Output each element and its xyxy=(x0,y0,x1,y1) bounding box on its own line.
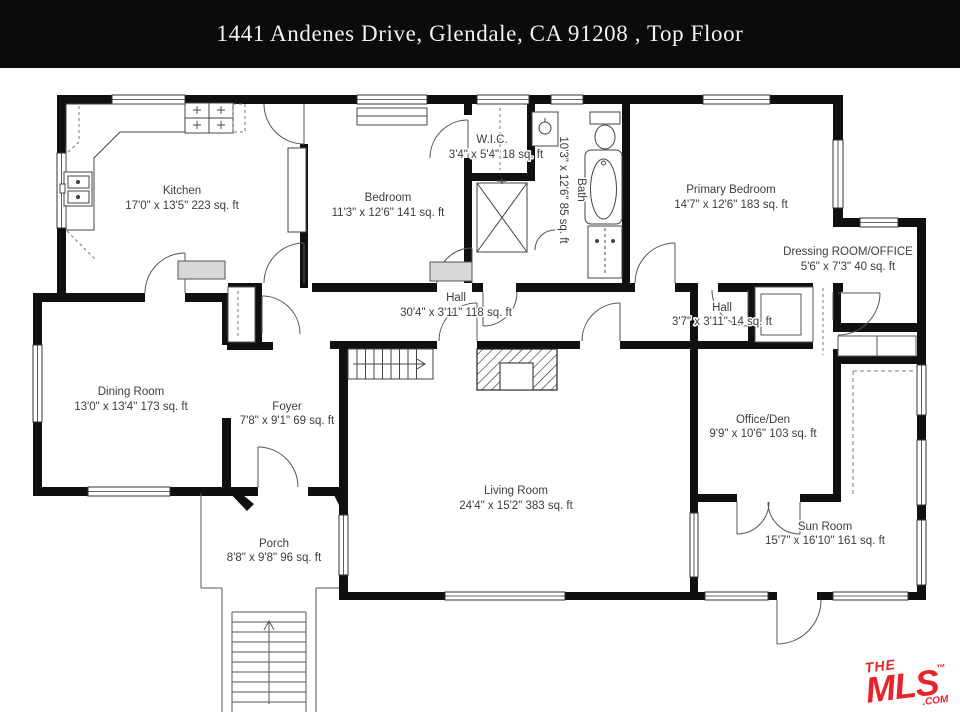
interior-stairs xyxy=(348,349,433,379)
room-label-bedroom: Bedroom xyxy=(365,192,412,204)
room-label-foyer: Foyer xyxy=(272,401,302,413)
room-dims-dressing: 5'6" x 7'3" 40 sq. ft xyxy=(801,261,896,273)
room-label-sun-room: Sun Room xyxy=(798,521,852,533)
room-dims-wic: 3'4" x 5'4" 18 sq. ft xyxy=(449,149,544,161)
room-dims-living: 24'4" x 15'2" 383 sq. ft xyxy=(459,500,573,512)
corridor-pocket-door xyxy=(813,288,833,355)
hall-closet xyxy=(228,287,255,342)
toilet-icon xyxy=(590,112,620,149)
refrigerator-icon xyxy=(288,148,306,232)
room-label-dressing: Dressing ROOM/OFFICE xyxy=(783,246,913,258)
floor-plan-drawing: Kitchen 17'0" x 13'5" 223 sq. ft Bedroom… xyxy=(0,0,960,720)
room-dims-bedroom: 11'3" x 12'6" 141 sq. ft xyxy=(332,207,446,219)
room-dims-kitchen: 17'0" x 13'5" 223 sq. ft xyxy=(125,200,239,212)
dressing-closet-row xyxy=(838,336,916,356)
room-label-living: Living Room xyxy=(484,485,548,497)
room-label-wic: W.I.C. xyxy=(476,134,507,146)
room-dims-bath: 10'3" x 12'6" 85 sq. ft xyxy=(557,136,569,244)
room-label-dining: Dining Room xyxy=(98,386,164,398)
room-label-primary-bedroom: Primary Bedroom xyxy=(686,184,775,196)
room-label-hall-small: Hall xyxy=(712,302,732,314)
shower-icon xyxy=(477,178,527,252)
bedroom-closet xyxy=(357,108,427,125)
room-dims-office-den: 9'9" x 10'6" 103 sq. ft xyxy=(709,428,817,440)
stove-icon xyxy=(185,103,233,133)
bathtub-icon xyxy=(585,150,622,224)
room-dims-dining: 13'0" x 13'4" 173 sq. ft xyxy=(74,401,188,413)
bedroom-dresser xyxy=(430,262,472,281)
kitchen-sink xyxy=(60,172,92,206)
room-dims-sun-room: 15'7" x 16'10" 161 sq. ft xyxy=(765,535,886,547)
room-label-bath: Bath xyxy=(575,178,587,202)
fireplace-icon xyxy=(477,349,557,390)
room-label-kitchen: Kitchen xyxy=(163,185,201,197)
walls xyxy=(33,95,926,600)
room-label-porch: Porch xyxy=(259,538,289,550)
sun-room-dashed-line xyxy=(853,371,913,496)
small-hall-closet xyxy=(755,287,813,342)
room-label-office-den: Office/Den xyxy=(736,414,790,426)
floor-plan-page: 1441 Andenes Drive, Glendale, CA 91208 ,… xyxy=(0,0,960,720)
mls-logo: THE MLS™ .COM xyxy=(862,651,949,714)
room-label-hall: Hall xyxy=(446,292,466,304)
room-dims-porch: 8'8" x 9'8" 96 sq. ft xyxy=(227,552,322,564)
room-dims-hall: 30'4" x 3'11" 118 sq. ft xyxy=(400,307,513,319)
bath-vanity xyxy=(532,112,558,146)
kitchen-cabinet xyxy=(178,261,225,279)
room-dims-foyer: 7'8" x 9'1" 69 sq. ft xyxy=(240,415,335,427)
exterior-stairs xyxy=(222,588,316,712)
room-dims-hall-small: 3'7" x 3'11" 14 sq. ft xyxy=(672,316,773,328)
trademark-symbol: ™ xyxy=(936,662,945,673)
room-dims-primary-bedroom: 14'7" x 12'6" 183 sq. ft xyxy=(674,199,788,211)
bath-cabinet xyxy=(588,226,622,278)
